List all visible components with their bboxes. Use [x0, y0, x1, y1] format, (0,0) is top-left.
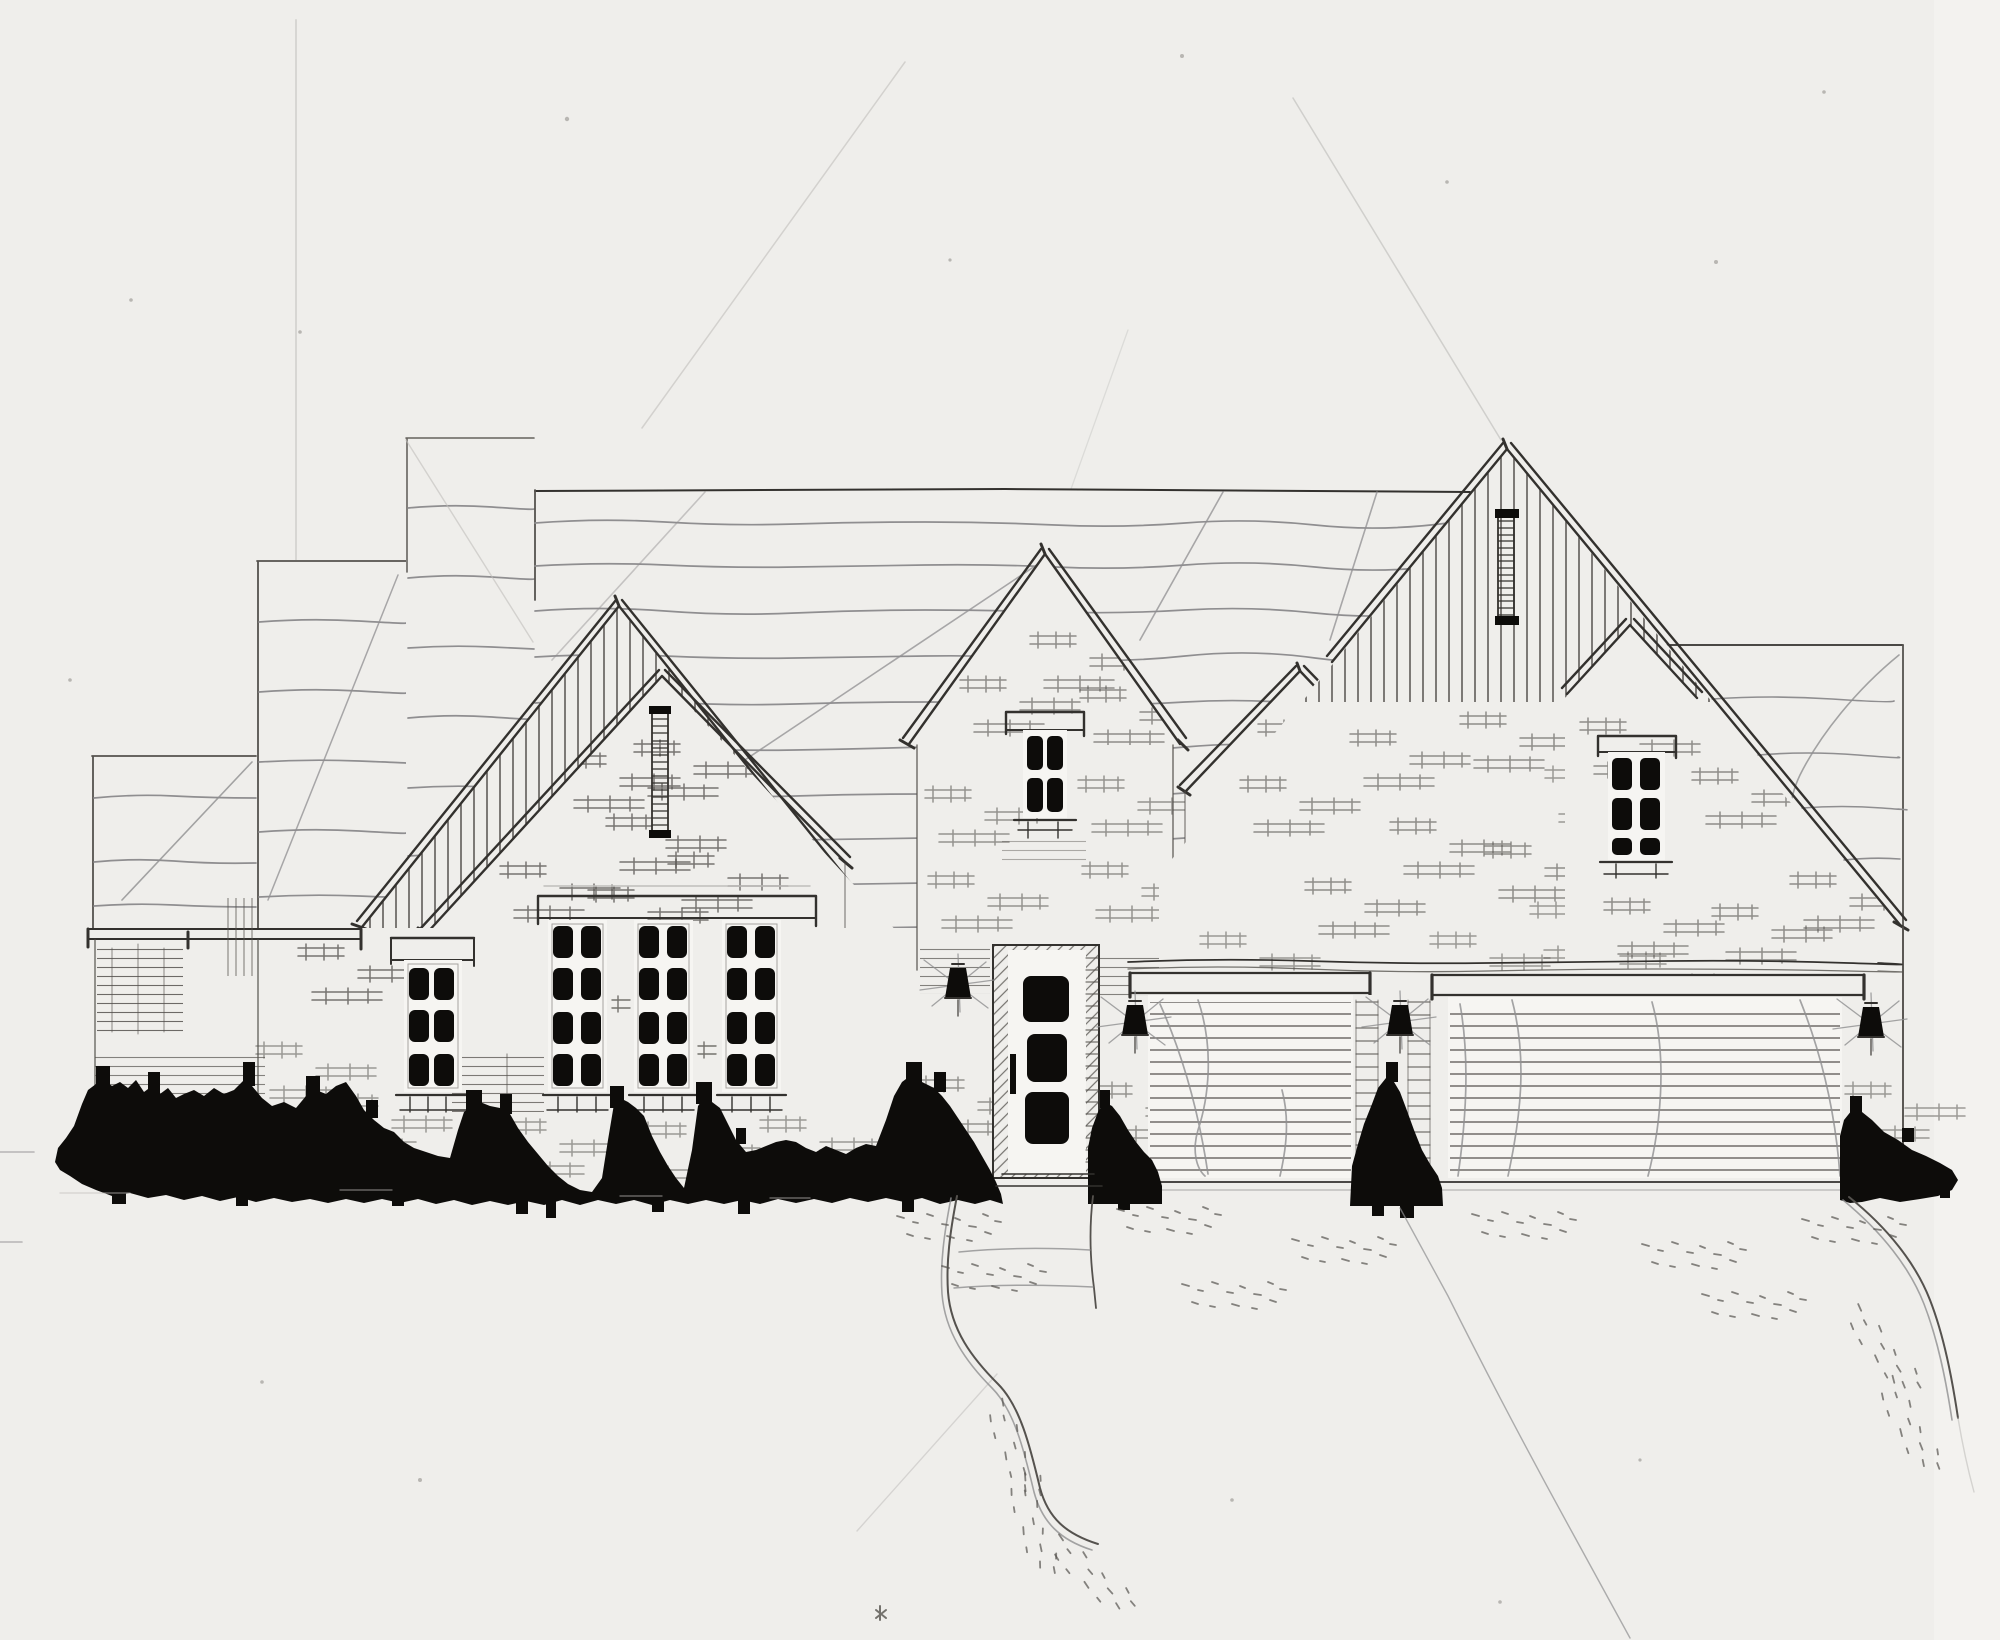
right-gable-window — [1598, 736, 1676, 878]
siding-courses — [452, 1054, 544, 1112]
siding-courses — [97, 944, 183, 1036]
sketch-page — [0, 0, 2000, 1640]
tall-window — [543, 920, 612, 1112]
door-handle — [1010, 1054, 1016, 1094]
door-ribs — [1150, 1002, 1351, 1172]
front-door — [993, 945, 1099, 1178]
garage-bay — [1108, 960, 1965, 1190]
corner-boards — [224, 898, 258, 976]
door-ribs — [1450, 1004, 1840, 1172]
door-panels — [1023, 976, 1069, 1144]
garage-header-single — [1130, 973, 1370, 997]
siding-courses — [1002, 836, 1086, 866]
garage-single-door — [1148, 995, 1353, 1178]
tall-window — [717, 920, 786, 1112]
garage-double-door — [1448, 997, 1842, 1178]
paper-edge-strip — [1934, 0, 2000, 1640]
tall-window — [629, 920, 698, 1112]
garage-header-double — [1432, 975, 1864, 999]
elevation-sketch — [0, 0, 2000, 1640]
